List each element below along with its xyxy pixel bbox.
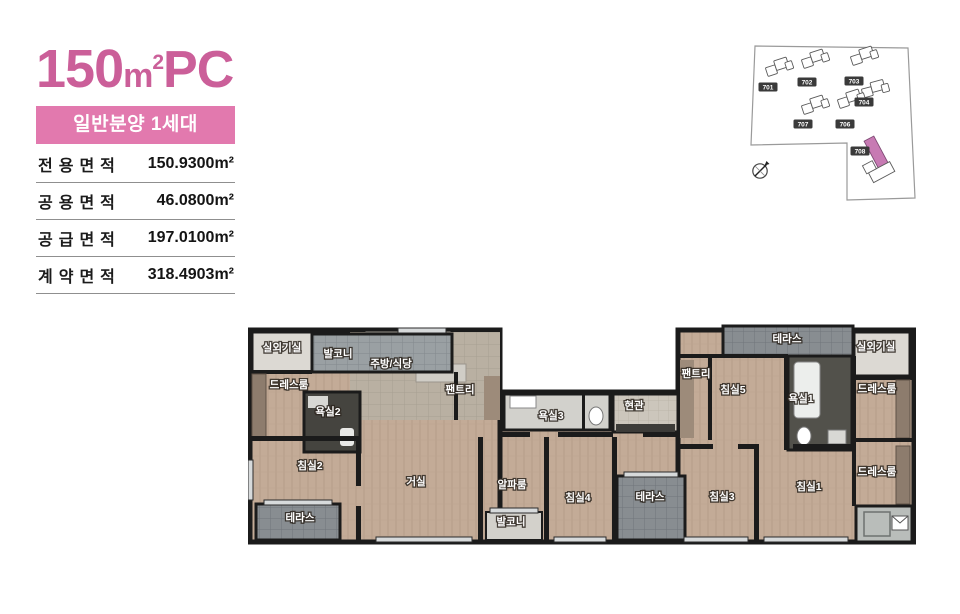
wall bbox=[356, 436, 361, 486]
room-label: 주방/식당 bbox=[370, 357, 412, 370]
wall bbox=[478, 437, 483, 542]
room-label: 욕실2 bbox=[315, 405, 340, 418]
window bbox=[554, 537, 606, 542]
wall bbox=[500, 432, 530, 437]
room-label: 침실1 bbox=[796, 480, 821, 493]
wall bbox=[678, 444, 713, 449]
bath1-tub bbox=[794, 362, 820, 418]
wall bbox=[793, 444, 853, 449]
window bbox=[264, 500, 332, 505]
area-row-label: 공용면적 bbox=[36, 189, 121, 213]
svg-text:708: 708 bbox=[855, 148, 866, 155]
floor-plan: 실외기실발코니주방/식당팬트리드레스룸욕실2침실2테라스거실욕실3현관알파룸발코… bbox=[248, 320, 916, 552]
window bbox=[376, 537, 472, 542]
title-unit-m: m bbox=[123, 57, 152, 95]
room-label: 침실2 bbox=[297, 459, 322, 472]
window bbox=[684, 537, 748, 542]
site-map: 701702703704707706708 bbox=[746, 30, 918, 222]
title-suffix: PC bbox=[163, 41, 233, 99]
room-label: 실외기실 bbox=[857, 340, 896, 353]
building-chip-702: 702 bbox=[798, 78, 817, 87]
area-row-value: 46.0800m² bbox=[157, 192, 235, 210]
wall bbox=[252, 370, 312, 374]
wall bbox=[784, 356, 788, 450]
table-row: 공급면적 197.0100m² bbox=[36, 220, 235, 257]
building-chip-708: 708 bbox=[851, 147, 870, 156]
room-label: 침실5 bbox=[720, 383, 745, 396]
wall bbox=[678, 354, 788, 358]
table-row: 계약면적 318.4903m² bbox=[36, 257, 235, 294]
wall bbox=[582, 394, 585, 430]
dressroom-wardrobe-right-lower bbox=[896, 446, 910, 504]
area-row-label: 전용면적 bbox=[36, 152, 121, 176]
room-label: 발코니 bbox=[497, 515, 526, 528]
bath3-toilet bbox=[589, 407, 603, 425]
room-label: 팬트리 bbox=[682, 367, 711, 380]
room-label: 욕실3 bbox=[538, 409, 563, 422]
area-row-value: 318.4903m² bbox=[148, 266, 235, 284]
room-label: 욕실1 bbox=[788, 392, 813, 405]
window bbox=[398, 328, 446, 333]
room-label: 침실4 bbox=[565, 491, 590, 504]
svg-text:704: 704 bbox=[859, 99, 870, 106]
table-row: 공용면적 46.0800m² bbox=[36, 183, 235, 220]
entrance-shoe-cabinet bbox=[616, 424, 675, 432]
wall bbox=[856, 376, 912, 380]
svg-text:707: 707 bbox=[798, 121, 809, 128]
room-label: 드레스룸 bbox=[858, 465, 897, 478]
window bbox=[248, 460, 253, 500]
compass-icon bbox=[753, 161, 770, 178]
pantry-left-shelf bbox=[484, 376, 500, 420]
room-label: 테라스 bbox=[286, 511, 315, 524]
dressroom-wardrobe-right-upper bbox=[896, 380, 910, 438]
svg-text:701: 701 bbox=[763, 84, 774, 91]
svg-text:702: 702 bbox=[802, 79, 813, 86]
bath3-sink bbox=[510, 396, 536, 408]
wall bbox=[250, 436, 360, 441]
room-label: 테라스 bbox=[773, 332, 802, 345]
page-title: 150m2PC bbox=[36, 38, 246, 100]
bath1-sink bbox=[828, 430, 846, 444]
room-label: 현관 bbox=[624, 399, 644, 412]
svg-text:706: 706 bbox=[840, 121, 851, 128]
building-chip-704: 704 bbox=[855, 98, 874, 107]
bath1-toilet bbox=[797, 427, 811, 445]
area-row-label: 공급면적 bbox=[36, 226, 121, 250]
room-label: 드레스룸 bbox=[858, 382, 897, 395]
title-unit-superscript: 2 bbox=[152, 51, 163, 74]
window bbox=[764, 537, 848, 542]
svg-text:703: 703 bbox=[849, 78, 860, 85]
room-ac-unit-right bbox=[854, 332, 910, 376]
table-row: 전용면적 150.9300m² bbox=[36, 146, 235, 183]
area-row-value: 150.9300m² bbox=[148, 155, 235, 173]
room-label: 드레스룸 bbox=[270, 378, 309, 391]
building-chip-706: 706 bbox=[836, 120, 855, 129]
dressroom-wardrobe-left bbox=[252, 374, 266, 440]
building-chip-701: 701 bbox=[759, 83, 778, 92]
building-chip-707: 707 bbox=[794, 120, 813, 129]
sale-type-badge: 일반분양 1세대 bbox=[36, 106, 235, 144]
area-table: 전용면적 150.9300m² 공용면적 46.0800m² 공급면적 197.… bbox=[36, 146, 235, 294]
window bbox=[490, 508, 538, 513]
wall bbox=[856, 438, 912, 442]
wall bbox=[754, 444, 759, 542]
wall bbox=[544, 437, 549, 542]
room-label: 테라스 bbox=[636, 490, 665, 503]
room-terrace-center bbox=[617, 476, 685, 540]
room-label: 침실3 bbox=[709, 490, 734, 503]
area-row-label: 계약면적 bbox=[36, 263, 121, 287]
window bbox=[624, 472, 678, 477]
building-chip-703: 703 bbox=[845, 77, 864, 86]
room-label: 실외기실 bbox=[263, 341, 302, 354]
room-label: 팬트리 bbox=[446, 383, 475, 396]
wall bbox=[558, 432, 613, 437]
area-row-value: 197.0100m² bbox=[148, 229, 235, 247]
wall bbox=[356, 506, 361, 542]
room-label: 거실 bbox=[406, 475, 425, 488]
room-label: 발코니 bbox=[324, 347, 353, 360]
title-area-number: 150 bbox=[36, 39, 123, 99]
wall bbox=[454, 372, 458, 420]
room-label: 알파룸 bbox=[498, 478, 527, 491]
wall bbox=[643, 432, 678, 437]
wall bbox=[852, 356, 856, 506]
